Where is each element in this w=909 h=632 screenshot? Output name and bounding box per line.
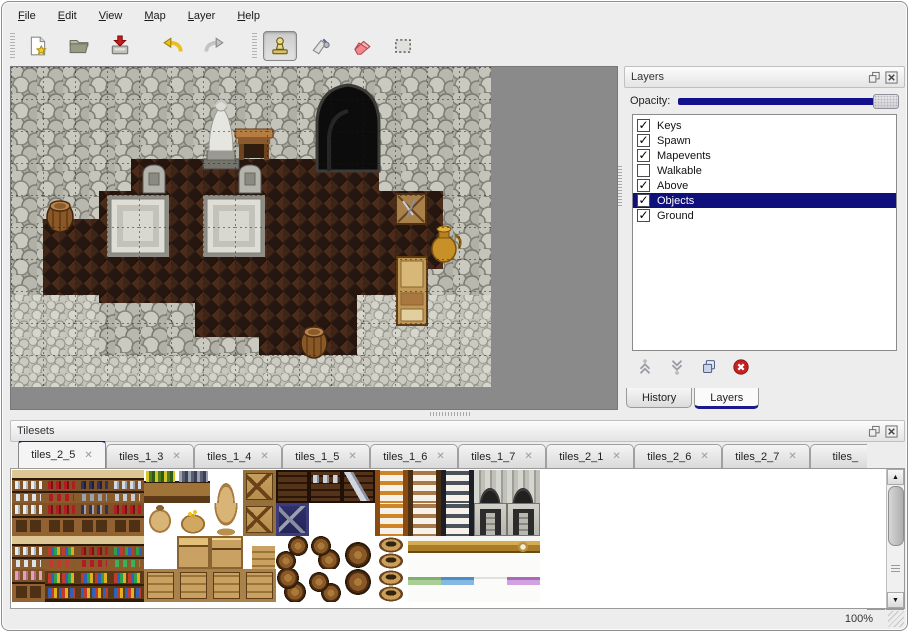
select-tool-button[interactable]	[386, 31, 420, 61]
scrollbar-grip	[891, 565, 900, 572]
resize-grip[interactable]	[888, 611, 904, 627]
scroll-up-button[interactable]: ▲	[887, 469, 904, 485]
tile-ladder-orange[interactable]	[375, 470, 408, 503]
application-window: FileEditViewMapLayerHelp	[0, 0, 909, 632]
layer-checkbox-walkable[interactable]	[637, 164, 650, 177]
layer-checkbox-above[interactable]: ✓	[637, 179, 650, 192]
tileset-tabs: tiles_2_5✕tiles_1_3✕tiles_1_4✕tiles_1_5✕…	[18, 441, 867, 469]
menu-file[interactable]: File	[8, 7, 46, 25]
tileset-tab-label: tiles_2_6	[647, 451, 691, 463]
layer-row-mapevents[interactable]: ✓Mapevents	[633, 148, 896, 163]
menu-bar: FileEditViewMapLayerHelp	[8, 5, 901, 27]
tile-flowerbox[interactable]	[144, 470, 177, 503]
layer-checkbox-keys[interactable]: ✓	[637, 119, 650, 132]
opacity-row: Opacity:	[630, 92, 899, 110]
horizontal-splitter[interactable]	[10, 409, 617, 418]
tile-ladder-brown[interactable]	[408, 470, 441, 503]
tileset-tab-label: tiles_	[832, 451, 858, 463]
menu-map[interactable]: Map	[134, 7, 175, 25]
tile-crate[interactable]	[144, 569, 177, 602]
arrow-up-icon: ▲	[892, 474, 899, 481]
move-up-button[interactable]	[634, 356, 656, 378]
tile-barrels-c[interactable]	[276, 569, 309, 602]
tileset-tab-label: tiles_1_6	[383, 451, 427, 463]
open-folder-button[interactable]	[62, 31, 96, 61]
layer-checkbox-objects[interactable]: ✓	[637, 194, 650, 207]
tab-history[interactable]: History	[626, 388, 692, 408]
layer-checkbox-spawn[interactable]: ✓	[637, 134, 650, 147]
layer-row-keys[interactable]: ✓Keys	[633, 118, 896, 133]
map-canvas-area[interactable]	[10, 66, 618, 410]
tile-bed-head[interactable]	[408, 536, 441, 569]
tileset-tab-label: tiles_1_3	[119, 451, 163, 463]
tile-shelf-books[interactable]	[45, 569, 78, 602]
tile-pots[interactable]	[375, 536, 408, 569]
tile-darkshelf[interactable]	[276, 470, 309, 503]
tab-close-icon[interactable]: ✕	[348, 451, 356, 462]
scrollbar-thumb[interactable]	[888, 486, 904, 546]
layer-row-above[interactable]: ✓Above	[633, 178, 896, 193]
tileset-tab-label: tiles_2_1	[559, 451, 603, 463]
tab-close-icon[interactable]: ✕	[612, 451, 620, 462]
toolbar	[8, 29, 901, 63]
tab-layers[interactable]: Layers	[694, 388, 759, 409]
tab-close-icon[interactable]: ✕	[84, 450, 92, 461]
tilesets-dock: Tilesets tiles_2_5✕tiles_1_3✕tiles_1_4✕t…	[10, 420, 905, 610]
tile-crate-x[interactable]	[243, 503, 276, 536]
toolbar-tool-group	[263, 31, 427, 61]
arrow-down-icon: ▼	[892, 597, 899, 604]
tile-ladder-orange[interactable]	[375, 503, 408, 536]
layer-label: Above	[657, 180, 688, 192]
tile-bed-white[interactable]	[474, 569, 507, 602]
tileset-tab-tiles_2_6[interactable]: tiles_2_6✕	[634, 444, 722, 469]
layer-checkbox-ground[interactable]: ✓	[637, 209, 650, 222]
tile-empty	[342, 503, 375, 536]
tile-shelf-jars[interactable]	[111, 470, 144, 503]
tile-ladder-brown[interactable]	[408, 503, 441, 536]
layer-actions	[634, 354, 752, 380]
tile-pots[interactable]	[375, 569, 408, 602]
layer-row-objects[interactable]: ✓Objects	[633, 193, 896, 208]
layer-row-spawn[interactable]: ✓Spawn	[633, 133, 896, 148]
delete-layer-button[interactable]	[730, 356, 752, 378]
map-canvas[interactable]	[11, 67, 492, 388]
layer-label: Objects	[657, 195, 694, 207]
fill-tool-button[interactable]	[304, 31, 338, 61]
redo-button[interactable]	[197, 31, 231, 61]
stamp-tool-button[interactable]	[263, 31, 297, 61]
tileset-content[interactable]: ▲ ▼	[10, 468, 905, 609]
tile-ladder-dark[interactable]	[441, 470, 474, 503]
toolbar-history-group	[156, 31, 238, 61]
opacity-slider-track[interactable]	[678, 98, 899, 105]
tileset-tab-tiles[interactable]: tiles_✕	[810, 444, 867, 469]
tool-toolbar-grip[interactable]	[252, 33, 257, 59]
undo-button[interactable]	[156, 31, 190, 61]
tileset-tab-label: tiles_1_4	[207, 451, 251, 463]
layers-dock-titlebar: Layers	[624, 66, 905, 88]
tile-empty	[309, 503, 342, 536]
tile-arch-door[interactable]	[474, 503, 507, 536]
tile-crate-lid[interactable]	[210, 536, 243, 569]
tab-close-icon[interactable]: ✕	[436, 451, 444, 462]
layer-label: Spawn	[657, 135, 691, 147]
tileset-tabstrip: tiles_2_5✕tiles_1_3✕tiles_1_4✕tiles_1_5✕…	[10, 441, 905, 469]
tile-crate[interactable]	[210, 569, 243, 602]
tile-darkshelf-z[interactable]	[342, 470, 375, 503]
tab-close-icon[interactable]: ✕	[172, 451, 180, 462]
tileset-tab-tiles_1_6[interactable]: tiles_1_6✕	[370, 444, 458, 469]
menu-view[interactable]: View	[89, 7, 133, 25]
tileset-tab-label: tiles_2_5	[31, 449, 75, 461]
tile-crate-top[interactable]	[177, 536, 210, 569]
opacity-slider[interactable]	[678, 94, 899, 109]
eraser-tool-button[interactable]	[345, 31, 379, 61]
tile-arch-top[interactable]	[474, 470, 507, 503]
splitter-grip[interactable]	[430, 412, 470, 416]
layers-dock: Layers Opacity: ✓Keys✓Spawn✓MapeventsWal…	[624, 66, 905, 414]
layer-list[interactable]: ✓Keys✓Spawn✓MapeventsWalkable✓Above✓Obje…	[632, 114, 897, 351]
tile-shelf-red[interactable]	[78, 536, 111, 569]
tileset-tab-tiles_2_7[interactable]: tiles_2_7✕	[722, 444, 810, 469]
tile-crate[interactable]	[177, 569, 210, 602]
tab-close-icon[interactable]: ✕	[700, 451, 708, 462]
tile-grid-overlay	[11, 67, 491, 387]
tile-bed-green[interactable]	[408, 569, 441, 602]
tilesets-dock-title: Tilesets	[17, 425, 864, 437]
tile-shelf-goods[interactable]	[45, 536, 78, 569]
tile-cabinet-dishes[interactable]	[12, 503, 45, 536]
tile-barrels-a[interactable]	[276, 536, 309, 569]
layers-dock-title: Layers	[631, 71, 864, 83]
tilesets-dock-titlebar: Tilesets	[10, 420, 905, 442]
toolbar-grip[interactable]	[10, 33, 15, 59]
tileset-tab-label: tiles_1_7	[471, 451, 515, 463]
layer-label: Mapevents	[657, 150, 711, 162]
tile-bed-blue[interactable]	[441, 569, 474, 602]
float-panel-button[interactable]	[868, 425, 881, 438]
tile-shelf-cans[interactable]	[111, 536, 144, 569]
vertical-splitter[interactable]	[616, 66, 624, 410]
tab-close-icon[interactable]: ✕	[260, 451, 268, 462]
tile-ladder-dark[interactable]	[441, 503, 474, 536]
tileset-scrollbar[interactable]: ▲ ▼	[886, 469, 904, 608]
tile-graycrate[interactable]	[276, 503, 309, 536]
close-panel-button[interactable]	[885, 71, 898, 84]
tile-cabinet-dark[interactable]	[78, 503, 111, 536]
splitter-grip[interactable]	[618, 166, 622, 206]
tile-bed-head[interactable]	[441, 536, 474, 569]
move-down-button[interactable]	[666, 356, 688, 378]
tile-crate-x[interactable]	[243, 470, 276, 503]
tile-shelf-dark[interactable]	[78, 470, 111, 503]
opacity-label: Opacity:	[630, 95, 670, 107]
layer-label: Walkable	[657, 165, 702, 177]
tile-bed-purple[interactable]	[507, 569, 540, 602]
toolbar-file-group	[21, 31, 144, 61]
tile-shelf-dishes[interactable]	[12, 470, 45, 503]
tile-sack-top[interactable]	[210, 470, 243, 503]
tile-shelf-books[interactable]	[78, 569, 111, 602]
tile-shelf-red[interactable]	[45, 470, 78, 503]
tileset-tab-tiles_2_1[interactable]: tiles_2_1✕	[546, 444, 634, 469]
tile-shelf-books[interactable]	[111, 569, 144, 602]
tileset-tab-label: tiles_2_7	[735, 451, 779, 463]
tile-sack-bottom[interactable]	[210, 503, 243, 536]
float-panel-button[interactable]	[868, 71, 881, 84]
status-bar: 100%	[2, 608, 907, 630]
menu-help[interactable]: Help	[227, 7, 270, 25]
tile-barrel-bottom[interactable]	[342, 569, 375, 602]
zoom-level: 100%	[845, 613, 873, 625]
tileset-tab-label: tiles_1_5	[295, 451, 339, 463]
tile-shelf-dishes[interactable]	[12, 536, 45, 569]
tileset-tab-tiles_1_5[interactable]: tiles_1_5✕	[282, 444, 370, 469]
tile-cabinet-pink[interactable]	[12, 569, 45, 602]
tile-sack[interactable]	[144, 503, 177, 536]
tile-graybox[interactable]	[177, 470, 210, 503]
menu-edit[interactable]: Edit	[48, 7, 87, 25]
tile-cabinet-red[interactable]	[45, 503, 78, 536]
save-button[interactable]	[103, 31, 137, 61]
new-file-button[interactable]	[21, 31, 55, 61]
tile-bed-head[interactable]	[474, 536, 507, 569]
duplicate-layer-button[interactable]	[698, 356, 720, 378]
tileset-tab-tiles_1_3[interactable]: tiles_1_3✕	[106, 444, 194, 469]
opacity-slider-handle[interactable]	[873, 94, 899, 109]
layer-row-walkable[interactable]: Walkable	[633, 163, 896, 178]
layer-label: Keys	[657, 120, 681, 132]
tileset-grid	[12, 470, 540, 602]
tile-arch-door[interactable]	[507, 503, 540, 536]
tileset-tab-tiles_1_4[interactable]: tiles_1_4✕	[194, 444, 282, 469]
tile-barrel-top[interactable]	[342, 536, 375, 569]
window-frame: FileEditViewMapLayerHelp	[1, 1, 908, 631]
tile-empty	[144, 536, 177, 569]
layer-row-ground[interactable]: ✓Ground	[633, 208, 896, 223]
menu-layer[interactable]: Layer	[178, 7, 226, 25]
tile-sack-gold[interactable]	[177, 503, 210, 536]
tab-close-icon[interactable]: ✕	[788, 451, 796, 462]
close-panel-button[interactable]	[885, 425, 898, 438]
tile-darkshelf-metal[interactable]	[309, 470, 342, 503]
layer-label: Ground	[657, 210, 694, 222]
tile-cabinet-red[interactable]	[111, 503, 144, 536]
tile-crate[interactable]	[243, 569, 276, 602]
tile-crate-small[interactable]	[243, 536, 276, 569]
tile-barrels-b[interactable]	[309, 536, 342, 569]
layer-checkbox-mapevents[interactable]: ✓	[637, 149, 650, 162]
scroll-down-button[interactable]: ▼	[887, 592, 904, 608]
tab-close-icon[interactable]: ✕	[524, 451, 532, 462]
tile-arch-top[interactable]	[507, 470, 540, 503]
tileset-tab-tiles_1_7[interactable]: tiles_1_7✕	[458, 444, 546, 469]
dock-tab-bar: HistoryLayers	[626, 388, 759, 414]
tile-barrels-d[interactable]	[309, 569, 342, 602]
tileset-tab-tiles_2_5[interactable]: tiles_2_5✕	[18, 441, 106, 469]
tile-bed-head-fancy[interactable]	[507, 536, 540, 569]
